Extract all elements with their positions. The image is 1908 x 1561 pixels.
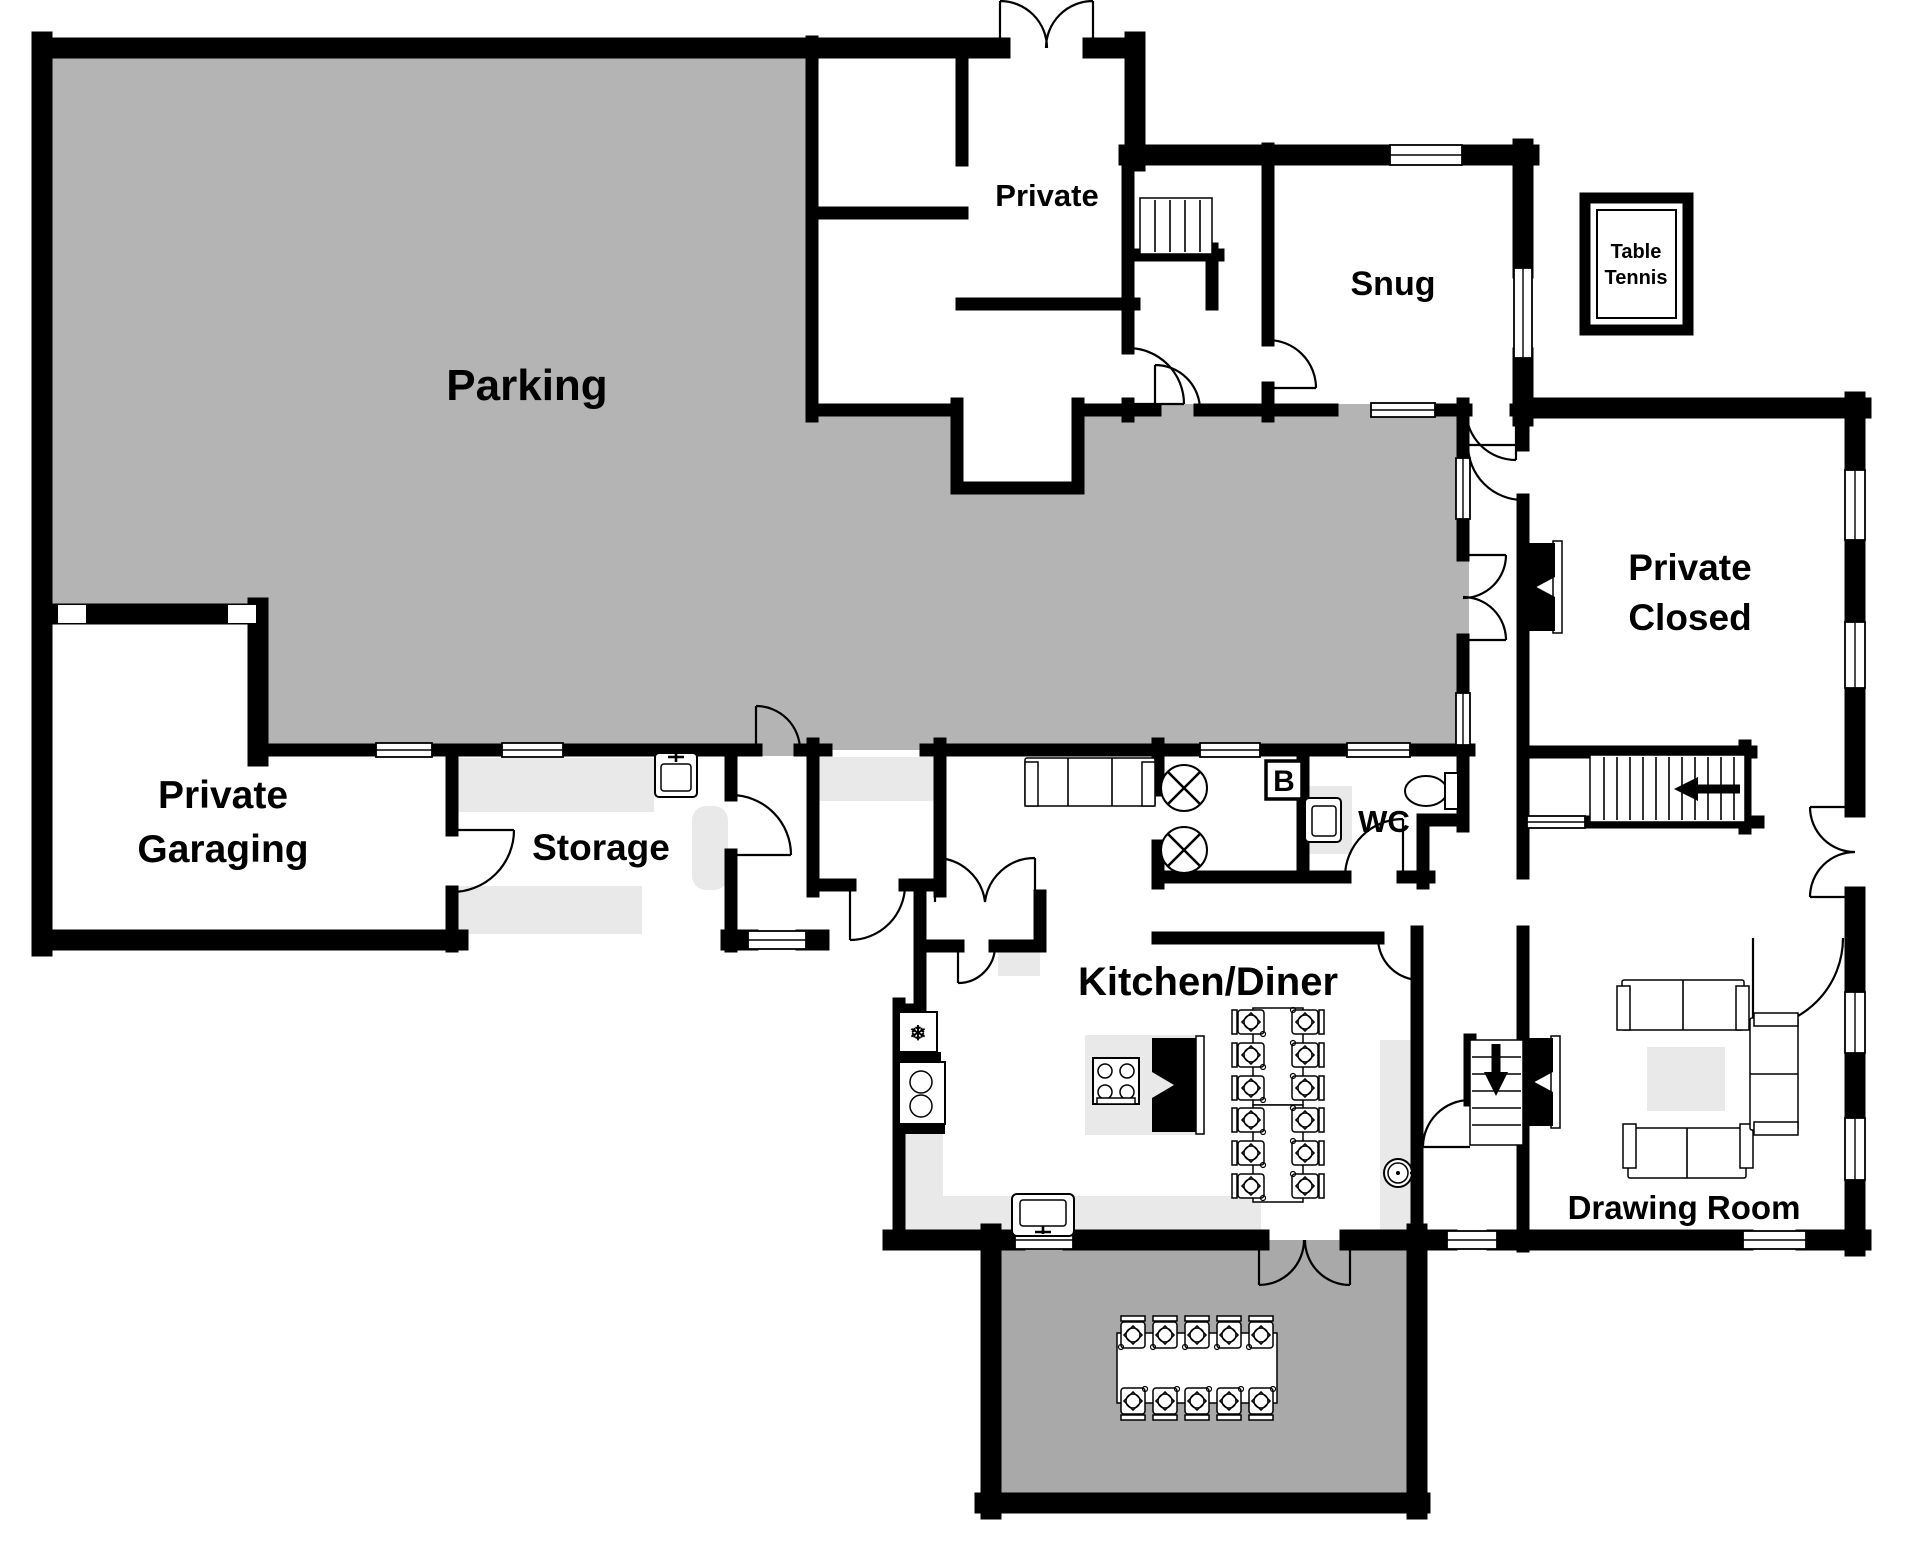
sofa-drawing-top bbox=[1617, 980, 1749, 1030]
washing-machine bbox=[1161, 765, 1207, 811]
drawing-room-label: Drawing Room bbox=[1568, 1189, 1801, 1226]
fridge: ❄ bbox=[899, 1012, 937, 1052]
private-closed-label-2: Closed bbox=[1628, 597, 1751, 638]
fireplace-drawing-room bbox=[1527, 1036, 1560, 1128]
boiler-box: B bbox=[1266, 761, 1302, 799]
wc-sink bbox=[1298, 798, 1341, 842]
storage-sink bbox=[655, 753, 697, 797]
storage-label: Storage bbox=[532, 827, 670, 868]
sofa-drawing-right bbox=[1750, 1013, 1798, 1135]
table-tennis-label-1: Table bbox=[1611, 241, 1662, 263]
wall-stub bbox=[893, 1124, 945, 1134]
stairs-secondary bbox=[1470, 1040, 1523, 1145]
table-tennis-room: Table Tennis bbox=[1585, 198, 1688, 330]
oven bbox=[899, 1062, 945, 1124]
garaging-label-1: Private bbox=[158, 774, 288, 817]
sofa-kitchen bbox=[1025, 758, 1155, 806]
floor-plan-page: ❄ B bbox=[0, 0, 1908, 1561]
table-tennis-label-2: Tennis bbox=[1605, 267, 1668, 289]
sofa-drawing-bottom bbox=[1623, 1124, 1753, 1178]
private-room-label: Private bbox=[995, 178, 1098, 213]
kitchen-sink bbox=[1012, 1194, 1074, 1236]
dining-table bbox=[1232, 1008, 1324, 1203]
parking-label: Parking bbox=[446, 361, 607, 410]
patio-table bbox=[1117, 1316, 1277, 1420]
wc-label: WC bbox=[1358, 804, 1410, 839]
washing-machine bbox=[1161, 827, 1207, 873]
private-closed-label-1: Private bbox=[1628, 547, 1751, 588]
wall-stub bbox=[893, 1052, 941, 1062]
stairs-main bbox=[1590, 755, 1745, 822]
toilet bbox=[1405, 773, 1458, 809]
garage-door-gap bbox=[228, 605, 256, 623]
fireplace-private-closed bbox=[1529, 541, 1562, 633]
boiler-label: B bbox=[1273, 765, 1295, 798]
garaging-label-2: Garaging bbox=[137, 828, 308, 871]
kitchen-diner-label: Kitchen/Diner bbox=[1078, 960, 1338, 1004]
stairs-hall bbox=[1140, 198, 1212, 254]
alcove-floor bbox=[963, 404, 1072, 492]
garage-door-gap bbox=[58, 605, 86, 623]
floor-plan: ❄ B bbox=[0, 0, 1908, 1561]
snug-label: Snug bbox=[1351, 265, 1436, 303]
hob bbox=[1093, 1058, 1139, 1104]
snowflake-icon: ❄ bbox=[910, 1023, 927, 1045]
